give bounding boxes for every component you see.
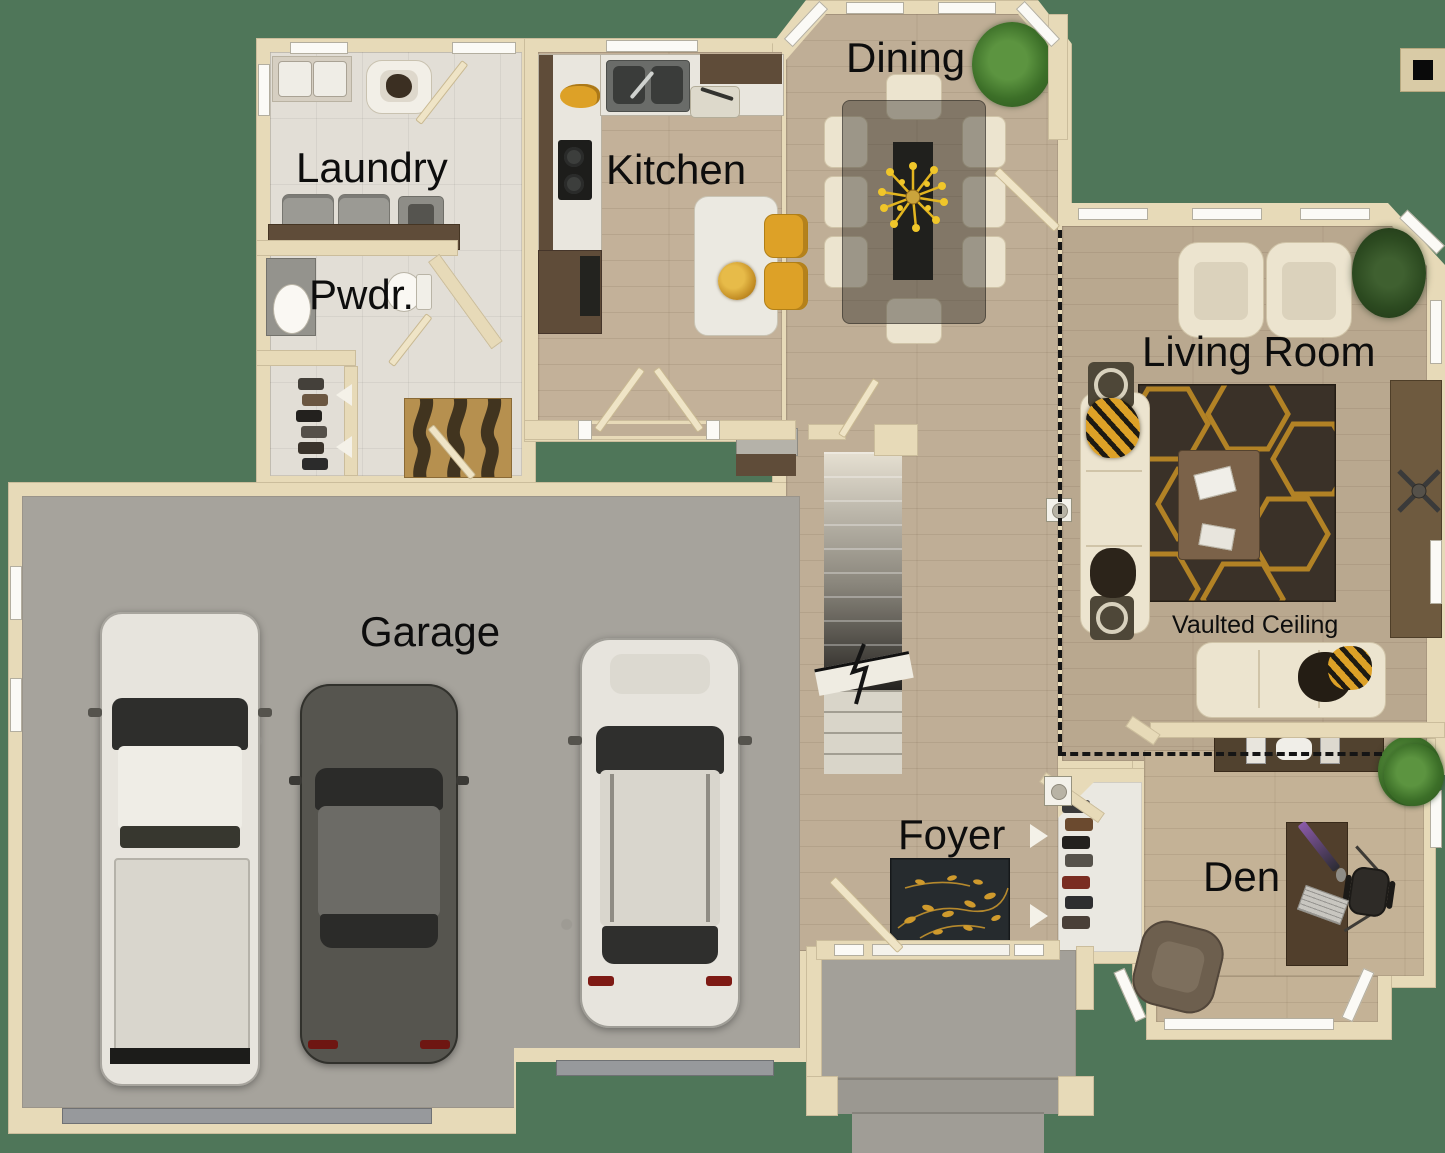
column-marker [1400,48,1445,92]
pickup-truck [100,612,260,1086]
suv-windshield [596,726,724,774]
porch-right-wall [1076,946,1094,1010]
window [290,42,348,54]
column-marker-core [1413,60,1433,80]
mud-closet-door-chevron [336,384,352,406]
shoe [298,378,324,390]
suv-hood-line [610,654,710,694]
porch-left-wall [806,946,822,1078]
suv-mirror [568,736,582,745]
cat-icon [386,74,412,98]
shoe [1062,876,1090,889]
shoe [301,426,327,438]
garage-door [556,1060,774,1076]
truck-windshield [112,698,248,750]
closet-shoes [1062,800,1094,944]
sedan-windshield [315,768,443,810]
laundry-powder-wall [256,240,458,256]
window [938,2,996,14]
side-table-speaker [1090,596,1134,640]
suv-roof [600,770,720,926]
living-plant [1352,228,1426,318]
room-label-kitchen: Kitchen [606,148,746,192]
kitchen-range [580,256,600,316]
den-armchair-cushion [1149,939,1207,995]
room-label-foyer: Foyer [898,813,1005,857]
living-den-half-wall [1150,722,1445,738]
shoe [1065,818,1093,831]
kitchen-door-jamb [578,420,592,440]
closet-door-chevron [1030,824,1048,848]
laundry-basket [278,61,312,97]
sedan-mirror [456,776,469,785]
junction-box [1044,776,1072,806]
truck-mirror [88,708,102,717]
suv-mirror [738,736,752,745]
console-blanket [1276,738,1312,760]
island-stool [764,262,808,310]
shoe [1065,896,1093,909]
truck-mirror [258,708,272,717]
window [1430,300,1442,364]
porch-step-cap [806,1076,838,1116]
truck-tailgate [110,1048,250,1064]
room-label-vaulted-ceiling: Vaulted Ceiling [1172,613,1338,638]
sedan-roof [318,806,440,918]
sedan-taillight [308,1040,338,1049]
desk-mouse [1336,868,1346,882]
truck-bed [114,858,250,1052]
toilet-tank [416,274,432,310]
window [452,42,516,54]
armchair-cushion [1194,262,1248,320]
dark-pillow [1090,548,1136,598]
vaulted-ceiling-dashed-line-left [1058,230,1062,754]
stairs-break-bolt-icon [848,642,876,706]
console-books [1246,736,1266,764]
laundry-basket [313,61,347,97]
suv-taillight [706,976,732,986]
vaulted-ceiling-dashed-line-bottom [1058,752,1382,756]
den-bay-window [1164,1018,1334,1030]
shoe [302,458,328,470]
mud-closet-door-chevron [336,436,352,458]
truck-rear-window [120,826,240,848]
window [10,566,22,620]
shoe [298,442,324,454]
mud-closet-shoes [296,378,332,470]
porch-step-1 [836,1078,1060,1114]
shoe [302,394,328,406]
shoe [1062,916,1090,929]
room-label-den: Den [1203,855,1280,899]
closet-door-chevron [1030,904,1048,928]
sidelight-window [834,944,864,956]
sedan-car [300,684,458,1064]
console-books [1320,736,1340,764]
window [258,64,270,116]
den-plant [1384,744,1444,806]
office-chair [1338,854,1403,929]
window [10,678,22,732]
sofa-left-cushion-line [1086,470,1142,472]
porch-floor [820,950,1076,1078]
powder-bottom-wall [256,350,356,366]
powder-sink [273,284,311,334]
sidelight-window [1014,944,1044,956]
fruit-bowl [718,262,756,300]
room-label-laundry: Laundry [296,146,448,190]
room-label-dining: Dining [846,36,965,80]
ceiling-fan-icon [1392,464,1445,518]
window [606,40,698,52]
burner [564,174,584,194]
shoe [1062,836,1090,849]
kitchen-door-jamb [706,420,720,440]
dining-centerpiece [872,156,954,238]
island-stool [764,214,808,258]
window [1300,208,1370,220]
gold-pillow [1086,398,1140,458]
stairs-top-column [874,424,918,456]
suv-rear-window [602,926,718,964]
room-label-living-room: Living Room [1142,330,1375,374]
armchair-cushion [1282,262,1336,320]
sofa-bottom-cushion-line [1258,650,1260,708]
kitchen-corner-cabinet [700,54,782,84]
garage-door [62,1108,432,1124]
gold-pillow [1328,646,1372,690]
suv-car [580,638,740,1028]
shoe [1065,854,1093,867]
floor-plan-page: { "plan": { "labels": { "dining": "Dinin… [0,0,1445,1151]
kitchen-door-opening [592,424,706,436]
window [846,2,904,14]
sedan-rear-window [320,914,438,948]
sedan-mirror [289,776,302,785]
closet-mud-wall [344,366,358,476]
shoe [296,410,322,422]
window [1192,208,1262,220]
room-label-powder: Pwdr. [309,273,414,317]
suv-taillight [588,976,614,986]
office-chair-seat [1347,865,1391,918]
porch-step-cap [1058,1076,1094,1116]
sofa-left-cushion-line [1086,545,1142,547]
sedan-taillight [420,1040,450,1049]
porch-step-2 [852,1112,1044,1153]
burner [564,147,584,167]
truck-cab-roof [118,746,242,830]
hall-desk-cabinet [736,454,796,476]
kitchen-sink-basin [651,66,683,104]
foyer-rug [890,858,1010,946]
suv-roof-rail [706,774,710,922]
window [1078,208,1148,220]
room-label-garage: Garage [360,610,500,654]
window [1430,540,1442,604]
suv-roof-rail [610,774,614,922]
dish-towel [560,84,600,108]
